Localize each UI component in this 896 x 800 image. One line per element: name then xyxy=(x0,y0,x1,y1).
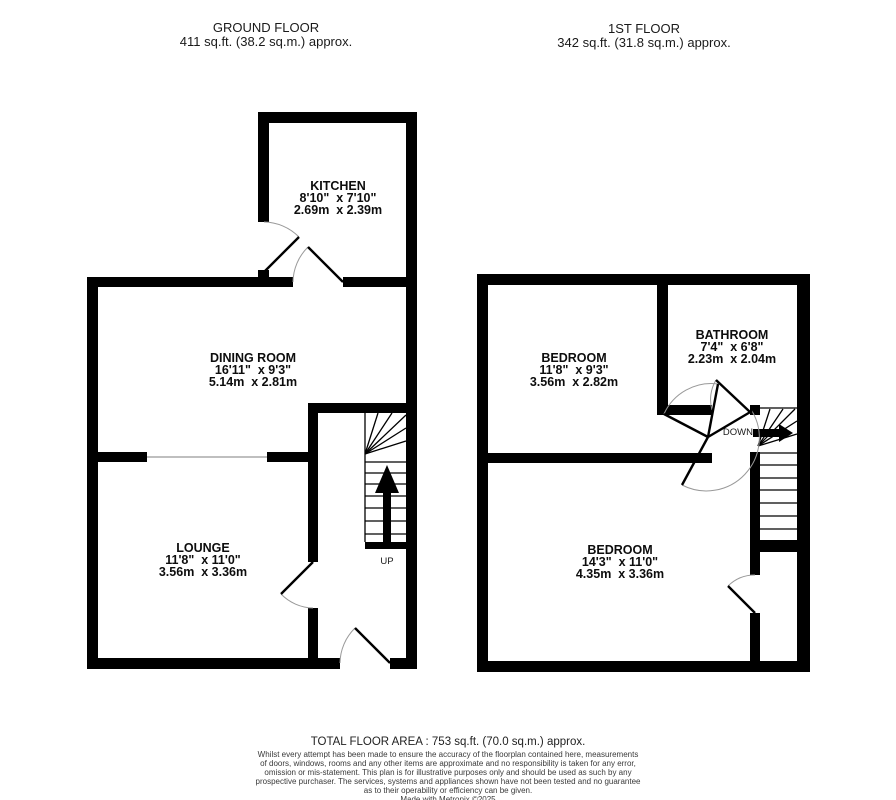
ground-floor-title: GROUND FLOOR xyxy=(116,21,416,35)
room-label-lounge: LOUNGE 11'8" x 11'0" 3.56m x 3.36m xyxy=(93,542,313,578)
first-floor-title: 1ST FLOOR xyxy=(494,22,794,36)
first-floor-area: 342 sq.ft. (31.8 sq.m.) approx. xyxy=(494,36,794,50)
credit-line: Made with Metropix ©2025 xyxy=(0,796,896,800)
first-floor-header: 1ST FLOOR 342 sq.ft. (31.8 sq.m.) approx… xyxy=(494,22,794,50)
bedroom2-door xyxy=(728,575,755,613)
ground-floor-header: GROUND FLOOR 411 sq.ft. (38.2 sq.m.) app… xyxy=(116,21,416,49)
front-door xyxy=(340,628,390,663)
floorplan-drawing xyxy=(0,0,896,800)
back-door xyxy=(293,247,343,282)
room-label-bathroom: BATHROOM 7'4" x 6'8" 2.23m x 2.04m xyxy=(622,329,842,365)
down-label: DOWN xyxy=(653,427,753,438)
room-label-bedroom-2: BEDROOM 14'3" x 11'0" 4.35m x 3.36m xyxy=(510,544,730,580)
ground-floor-staircase xyxy=(365,413,406,549)
up-label: UP xyxy=(347,556,427,567)
total-floor-area: TOTAL FLOOR AREA : 753 sq.ft. (70.0 sq.m… xyxy=(0,736,896,748)
room-label-kitchen: KITCHEN 8'10" x 7'10" 2.69m x 2.39m xyxy=(228,180,448,216)
room-label-dining-room: DINING ROOM 16'11" x 9'3" 5.14m x 2.81m xyxy=(143,352,363,388)
kitchen-door xyxy=(264,222,299,272)
floorplan-page: GROUND FLOOR 411 sq.ft. (38.2 sq.m.) app… xyxy=(0,0,896,800)
up-arrow-icon xyxy=(375,465,399,547)
disclaimer: Whilst every attempt has been made to en… xyxy=(0,751,896,800)
ground-floor-area: 411 sq.ft. (38.2 sq.m.) approx. xyxy=(116,35,416,49)
